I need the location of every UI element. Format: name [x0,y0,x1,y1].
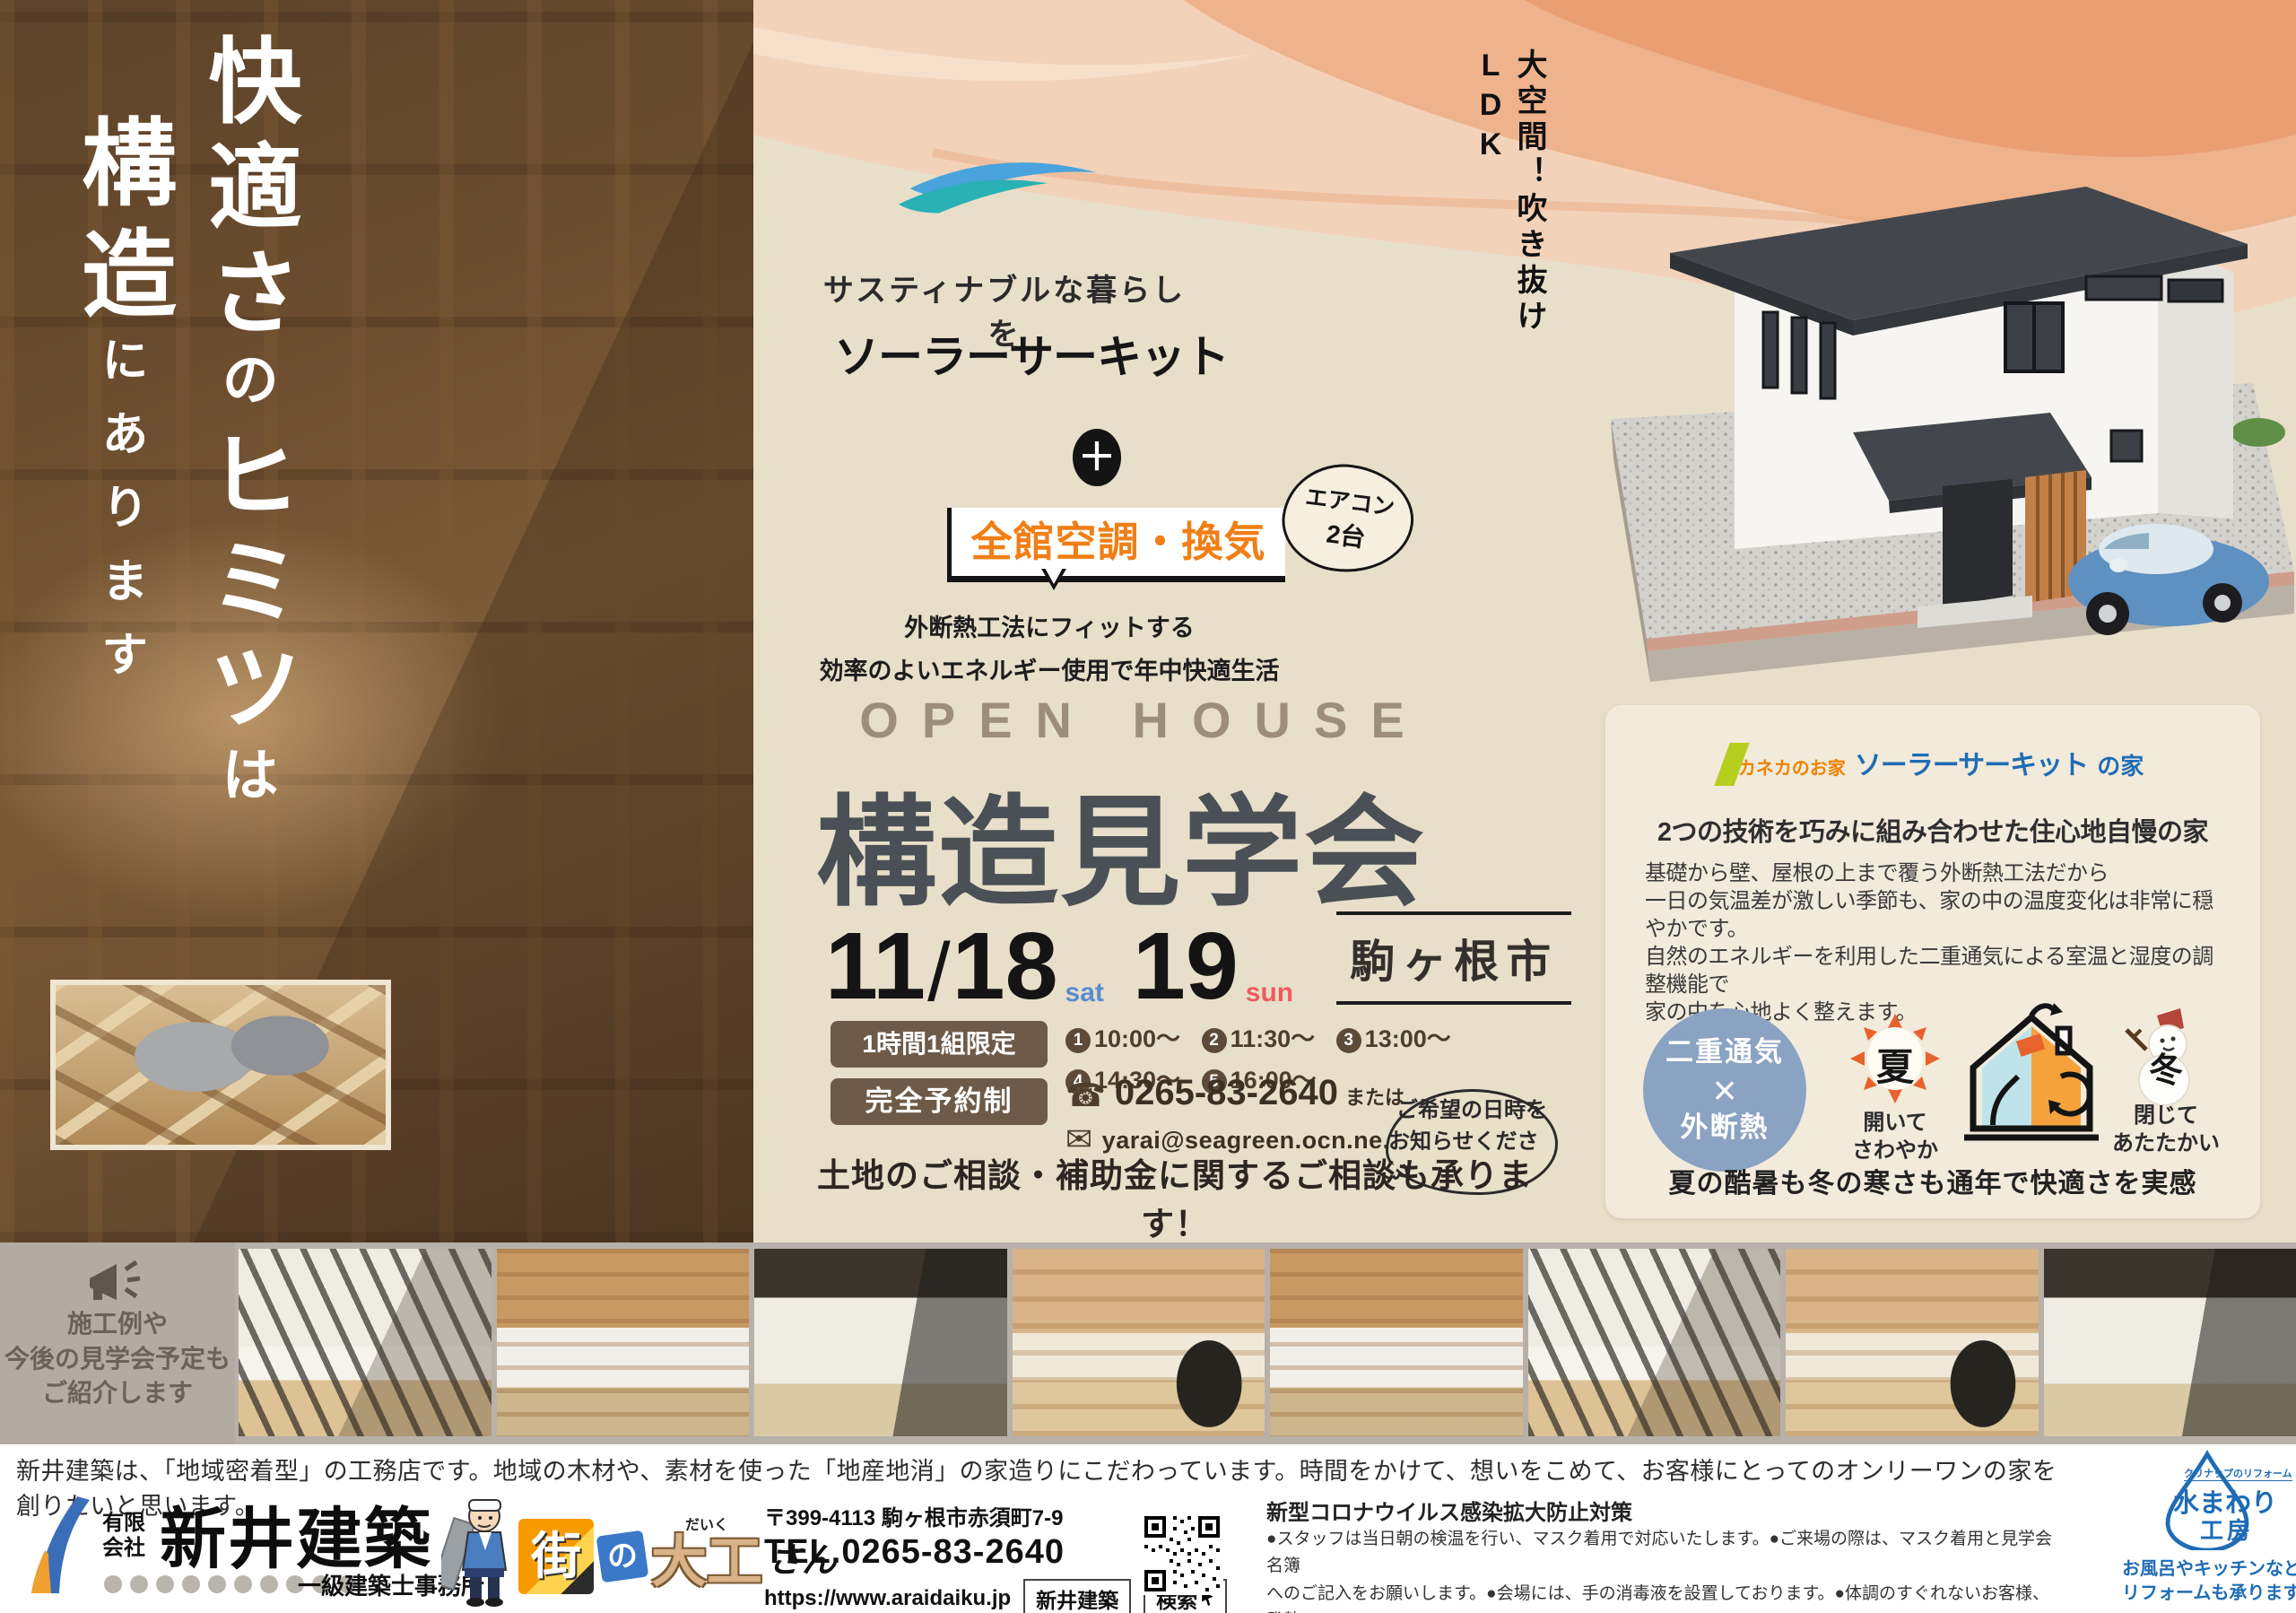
announce-line: 施工例や [67,1307,168,1342]
ldk-line: 大空間！ [1512,48,1546,192]
company-sail-logo [23,1493,97,1599]
badge-x: × [1713,1068,1737,1112]
phone-number[interactable]: 0265-83-2640 [1115,1073,1338,1112]
wave-logo-icon [897,153,1099,229]
date-dow1: sat [1065,978,1104,1008]
card-body-line: 一日の気温差が激しい季節も、家の中の温度変化は非常に穏やかです。 [1645,887,2228,943]
aircon-note-line: 2台 [1325,514,1368,554]
gallery-photo-1 [239,1249,491,1436]
reform-caption: お風呂やキッチンなどのリフォームも承ります [2122,1557,2292,1606]
subcopy-line2: 効率のよいエネルギー使用で年中快適生活 [798,651,1300,686]
consultation-note: 土地のご相談・補助金に関するご相談も承ります！ [789,1148,1561,1245]
time-slot: 211:30〜 [1202,1025,1316,1052]
contact-block: ☎0265-83-2640または ✉yarai@seagreen.ocn.ne.… [1065,1073,1413,1158]
gallery-photo-5 [1270,1249,1523,1436]
covid-heading: 新型コロナウイルス感染拡大防止対策 [1266,1495,2056,1526]
covid-line: へのご記入をお願いします。●会場には、手の消毒液を設置しております。●体調のすぐ… [1266,1581,2056,1613]
announce-box: 施工例や 今後の見学会予定も ご紹介します [0,1242,235,1444]
qr-code[interactable] [1141,1513,1223,1595]
house-model-photo [1584,11,2296,694]
footer: 新井建築は、「地域密着型」の工務店です。地域の木材や、素材を使った「地産地消」の… [0,1444,2296,1613]
gallery-photo-3 [754,1249,1007,1436]
gallery-photo-6 [1528,1249,1781,1436]
slot-number-icon: 3 [1336,1028,1361,1053]
covid-notice: 新型コロナウイルス感染拡大防止対策 ●スタッフは当日朝の検温を行い、マスク着用で… [1266,1495,2056,1613]
headline-segment: にあります [94,336,145,703]
badge-line: 外断熱 [1681,1112,1770,1144]
date-day1: 18 [952,919,1058,1014]
gallery-photo-2 [497,1249,750,1436]
card-caption: 夏の酷暑も冬の寒さも通年で快適さを実感 [1605,1161,2260,1200]
ac-ventilation-label: 全館空調・換気 [947,508,1285,582]
badge-line: 二重通気 [1665,1036,1784,1068]
clinup-label: クリナップのリフォーム [2184,1466,2292,1481]
gallery-photo-4 [1013,1249,1265,1436]
gallery-photos [235,1249,2296,1436]
plus-icon: ＋ [1073,429,1121,486]
card-body-line: 基礎から壁、屋根の上まで覆う外断熱工法だから [1645,859,2228,887]
aircon-note-line: エアコン [1304,479,1397,522]
card-body: 基礎から壁、屋根の上まで覆う外断熱工法だから 一日の気温差が激しい季節も、家の中… [1645,859,2228,1026]
headline-segment: 構造 [67,113,172,336]
event-location: 駒ヶ根市 [1336,911,1571,1005]
website-url[interactable]: https://www.araidaiku.jp [764,1586,1011,1611]
limited-badge: 1時間1組限定 [831,1021,1048,1068]
daiku-chars: 大工だいく [651,1516,762,1597]
summer-kanji: 夏 [1850,1037,1940,1092]
announce-line: ご紹介します [42,1376,193,1411]
card-body-line: 自然のエネルギーを利用した二重通気による室温と湿度の調整機能で [1645,943,2228,998]
card-heading: 2つの技術を巧みに組み合わせた住心地自慢の家 [1605,811,2260,849]
bubble-line: ご希望の日時を [1396,1095,1547,1127]
date-day2: 19 [1133,919,1239,1014]
slot-number-icon: 2 [1202,1028,1227,1053]
solar-circuit-card: カネカのお家 ソーラーサーキット の家 2つの技術を巧みに組み合わせた住心地自慢… [1605,705,2260,1218]
phone-icon: ☎ [1065,1077,1106,1114]
time-slot: 110:00〜 [1065,1025,1180,1052]
brand-suffix: の家 [2097,748,2144,781]
flyer: 快適さのヒミツは 構造にあります サスティナブルな暮らしを ソーラーサーキット … [0,0,2296,1613]
solar-circuit-brand: ソーラーサーキット [1855,743,2088,782]
kaneka-brand-row: カネカのお家 ソーラーサーキット の家 [1605,743,2260,786]
date-month: 11 [825,919,926,1014]
slot-time: 10:00〜 [1094,1025,1180,1052]
covid-line: ●スタッフは当日朝の検温を行い、マスク着用で対応いたします。●ご来場の際は、マス… [1266,1526,2056,1581]
summer-label: 開いてさわやか [1837,1109,1953,1164]
megaphone-icon [84,1257,151,1307]
snowman-icon: 冬 [2121,1007,2211,1096]
headline-segment: 快適さ [194,32,297,350]
slot-time: 13:00〜 [1365,1025,1451,1052]
event-title: 構造見学会 [789,755,1453,929]
hero-headline-sub: 構造にあります [50,113,188,1055]
reservation-badge: 完全予約制 [831,1078,1048,1125]
company-name: 新井建築 [160,1486,432,1582]
product-name: ソーラーサーキット [825,321,1238,386]
ldk-vertical-copy: 大空間！吹き抜けLDK [1473,48,1552,425]
double-airflow-badge: 二重通気 × 外断熱 [1643,1008,1806,1172]
ventilation-duct-photo [50,980,391,1150]
event-dates: 11/18sat19sun 駒ヶ根市 [825,908,1571,1014]
construction-photo-panel: 快適さのヒミツは 構造にあります [0,0,753,1242]
carpenter-mascot [441,1493,515,1608]
winter-label: 閉じてあたたかい [2108,1102,2224,1157]
airflow-house-icon [1961,1001,2102,1148]
gallery-photo-7 [1786,1249,2039,1436]
winter-feature: 冬 閉じてあたたかい [2108,1007,2224,1157]
company-prefix: 有限会社 [102,1511,145,1562]
machi-char: 街 [518,1519,594,1594]
no-char: の [596,1530,649,1583]
winter-kanji: 冬 [2121,1042,2211,1092]
open-house-label: OPEN HOUSE [825,691,1462,749]
koubou-label: 工房 [2200,1513,2254,1546]
announce-line: 今後の見学会予定も [4,1342,230,1377]
subcopy-line1: 外断熱工法にフィットする [834,608,1265,643]
headline-segment: は [213,745,277,822]
time-slot-row: 110:00〜 211:30〜 313:00〜 [1065,1019,1460,1054]
slot-number-icon: 1 [1065,1028,1091,1053]
slot-time: 11:30〜 [1231,1025,1316,1052]
kaneka-label: カネカのお家 [1738,754,1846,780]
mizumawari-logo-block: クリナップのリフォーム 水まわり 工房 お風呂やキッチンなどのリフォームも承りま… [2122,1450,2292,1606]
date-slash: / [927,931,951,1014]
gallery-photo-8 [2044,1249,2296,1436]
headline-segment: ヒミツ [194,427,297,745]
date-dow2: sun [1246,978,1293,1008]
water-drop-icon: クリナップのリフォーム 水まわり 工房 [2153,1450,2261,1550]
phone-line: ☎0265-83-2640または [1065,1073,1413,1114]
furigana: だいく [685,1513,728,1534]
headline-segment: の [213,350,277,427]
time-slot: 313:00〜 [1336,1025,1451,1052]
hero-headline-main: 快適さのヒミツは [178,32,313,1028]
sun-icon: 夏 [1850,1014,1940,1103]
summer-feature: 夏 開いてさわやか [1837,1014,1953,1164]
search-word-box: 新井建築 [1023,1579,1131,1613]
